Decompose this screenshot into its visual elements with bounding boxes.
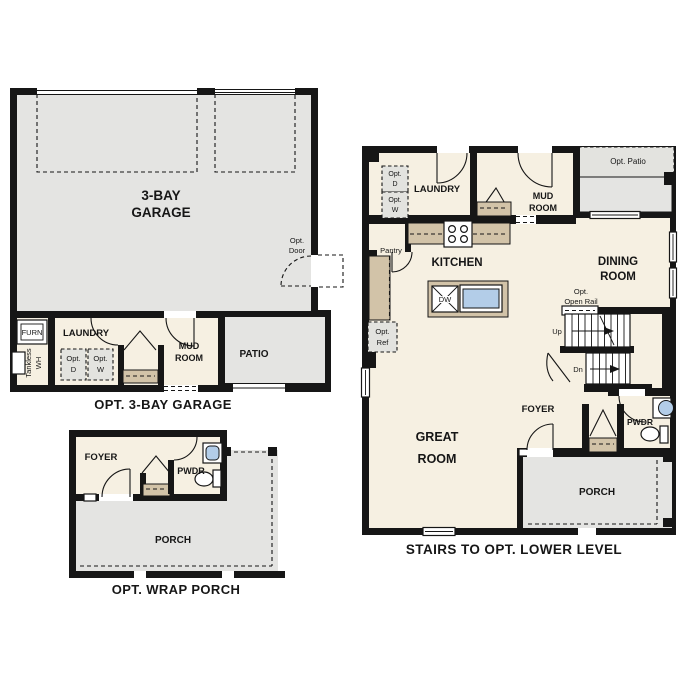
garage-mud-label-1: MUD (179, 341, 200, 351)
opt-ref-box: Opt. Ref (368, 322, 397, 352)
garage-laundry-label: LAUNDRY (63, 328, 110, 339)
svg-text:D: D (71, 365, 77, 374)
pwdr-toilet-icon (641, 426, 668, 443)
floor-plan-page: FURN Tankless WH Opt. D Opt. W 3-BAY (0, 0, 687, 687)
pwdr-sink-icon (653, 398, 674, 418)
opt-open-rail-label-1: Opt. (574, 287, 588, 296)
wrap-porch-caption: OPT. WRAP PORCH (112, 582, 241, 597)
svg-text:Opt.: Opt. (388, 171, 401, 178)
svg-text:Opt.: Opt. (375, 327, 389, 336)
main-mud-label-2: ROOM (529, 203, 557, 213)
dining-label-1: DINING (598, 256, 638, 268)
garage-patio-label: PATIO (239, 349, 268, 360)
svg-text:W: W (97, 365, 105, 374)
tankless-wh-label-2: WH (34, 357, 43, 370)
dw-label: DW (439, 295, 452, 304)
svg-text:Ref: Ref (377, 338, 390, 347)
main-porch-label: PORCH (579, 487, 615, 498)
kitchen-island: DW (428, 281, 508, 317)
stairs-down (586, 353, 630, 384)
garage-opt-washer-box: Opt. W (88, 349, 113, 380)
main-opt-patio: Opt. Patio (578, 147, 674, 212)
wrap-pwdr-label: PWDR (177, 466, 205, 476)
main-pwdr-label: PWDR (627, 417, 653, 427)
great-room-label-2: ROOM (418, 452, 457, 466)
wrap-foyer-label: FOYER (85, 452, 118, 463)
stairs-up (565, 314, 630, 347)
main-foyer-label: FOYER (522, 404, 555, 415)
garage-floor (17, 95, 311, 311)
main-laundry-label: LAUNDRY (414, 184, 461, 195)
furnace: FURN (17, 320, 47, 344)
opt-patio-label: Opt. Patio (610, 157, 646, 166)
tankless-wh-label-1: Tankless (24, 348, 33, 377)
dishwasher-icon: DW (432, 286, 458, 312)
wrap-porch-label: PORCH (155, 535, 191, 546)
up-label: Up (552, 327, 562, 336)
opt-open-rail-label-2: Open Rail (564, 297, 598, 306)
svg-text:W: W (392, 207, 399, 214)
garage-plan: FURN Tankless WH Opt. D Opt. W 3-BAY (10, 88, 343, 412)
garage-opt-dryer-box: Opt. D (61, 349, 86, 380)
svg-text:Opt.: Opt. (93, 354, 107, 363)
garage-room-label-2: GARAGE (131, 205, 190, 220)
opt-door-label-1: Opt. (290, 236, 304, 245)
opt-door-label-2: Door (289, 246, 306, 255)
stove-icon (444, 221, 472, 247)
wrap-porch-plan: FOYER PWDR PORCH OPT. WRAP PORCH (69, 430, 285, 597)
svg-text:D: D (392, 181, 397, 188)
main-plan-caption: STAIRS TO OPT. LOWER LEVEL (406, 542, 622, 557)
main-plan: Opt. Patio (362, 146, 677, 557)
floorplan-svg: FURN Tankless WH Opt. D Opt. W 3-BAY (0, 0, 687, 687)
svg-text:Opt.: Opt. (388, 197, 401, 204)
garage-mud-label-2: ROOM (175, 353, 203, 363)
main-mud-label-1: MUD (533, 191, 554, 201)
pantry-label: Pantry (380, 246, 402, 255)
dn-label: Dn (573, 365, 583, 374)
sink-icon (203, 443, 222, 463)
dining-label-2: ROOM (600, 271, 636, 283)
garage-room-label-1: 3-BAY (141, 188, 180, 203)
main-opt-washer-box: Opt. W (382, 192, 408, 218)
kitchen-label: KITCHEN (431, 257, 482, 269)
main-mud-openings (516, 215, 536, 224)
svg-text:Opt.: Opt. (66, 354, 80, 363)
furnace-label: FURN (22, 328, 43, 337)
main-opt-dryer-box: Opt. D (382, 166, 408, 192)
island-sink-icon (460, 285, 502, 312)
great-room-label-1: GREAT (416, 430, 459, 444)
garage-plan-caption: OPT. 3-BAY GARAGE (94, 397, 232, 412)
